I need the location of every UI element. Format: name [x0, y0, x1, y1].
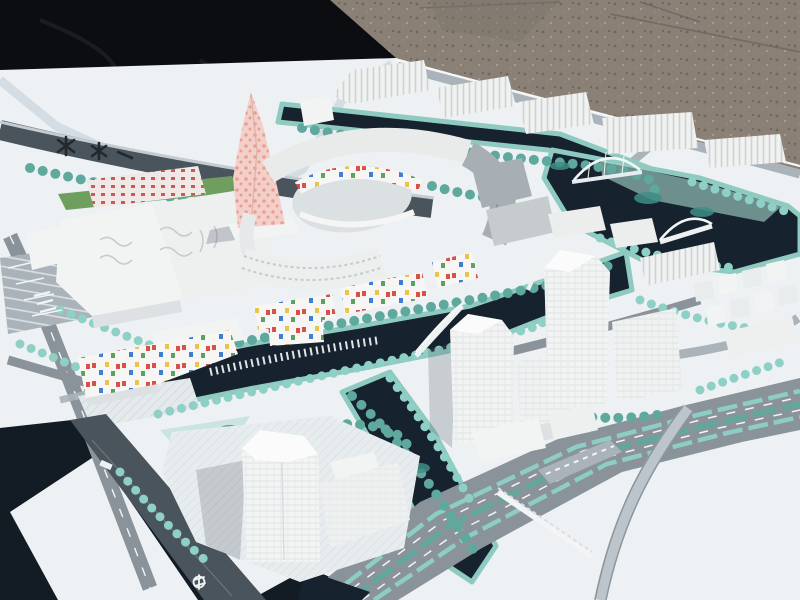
slab-d-grid — [612, 308, 682, 402]
north-block-4 — [602, 112, 698, 154]
photo-of-architectural-model — [0, 0, 800, 600]
tree-cluster — [634, 192, 662, 204]
tree-cluster — [690, 207, 714, 217]
tower-c-grid — [544, 250, 610, 404]
confetti-block-s2 — [268, 318, 324, 346]
model-photo-canvas — [0, 0, 800, 600]
north-block-5 — [704, 134, 786, 168]
tree-cluster — [550, 162, 570, 170]
